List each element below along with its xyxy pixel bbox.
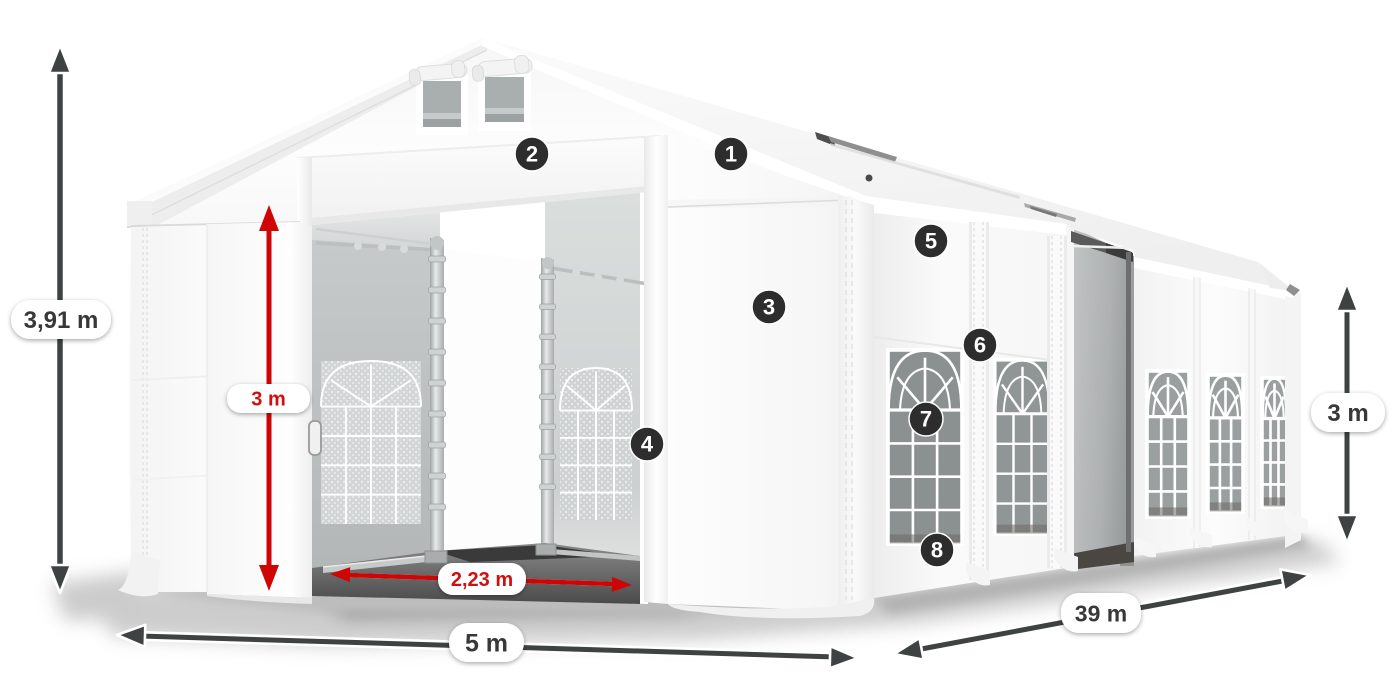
svg-text:1: 1 — [725, 142, 737, 167]
svg-text:5: 5 — [925, 229, 937, 254]
svg-text:3: 3 — [763, 295, 775, 320]
svg-text:3 m: 3 m — [251, 389, 285, 411]
svg-text:3,91 m: 3,91 m — [24, 307, 99, 334]
svg-text:4: 4 — [641, 432, 654, 457]
svg-text:39 m: 39 m — [1075, 600, 1127, 626]
svg-text:8: 8 — [931, 538, 943, 563]
svg-text:3 m: 3 m — [1327, 400, 1368, 427]
svg-text:2: 2 — [526, 142, 538, 167]
svg-text:5 m: 5 m — [465, 630, 508, 658]
svg-text:2,23 m: 2,23 m — [451, 569, 513, 591]
svg-text:6: 6 — [974, 333, 986, 358]
svg-text:7: 7 — [920, 407, 932, 432]
